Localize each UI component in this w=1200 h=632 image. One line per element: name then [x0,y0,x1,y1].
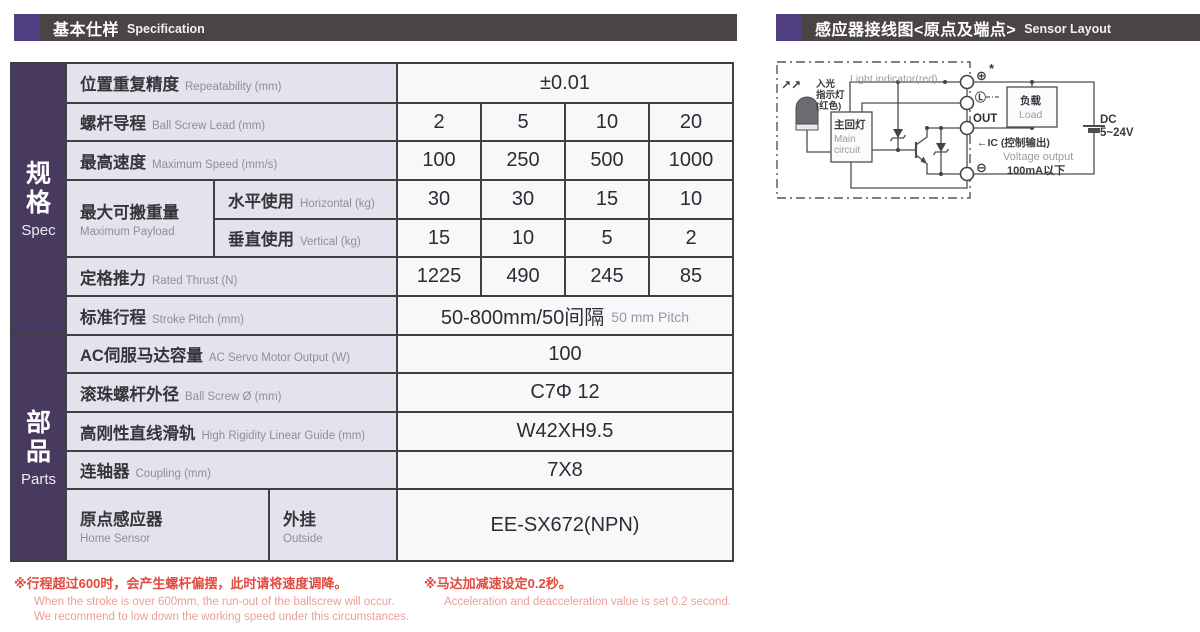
ic-control-output-label: ←IC (控制输出) [977,136,1050,149]
zener1-icon [893,129,903,138]
spec-header-title-en: Specification [127,20,205,36]
row-payload-horizontal-label: 水平使用Horizontal (kg) [215,181,396,218]
label-en: Home Sensor [80,533,268,545]
main-circuit-cn: 主回灯 [834,118,866,131]
label-cn: 外挂 [283,506,396,530]
label-en: Ball Screw Lead (mm) [152,120,265,132]
footnote-en-line2: We recommend to low down the working spe… [34,610,409,625]
cell-lead-1: 5 [482,104,564,140]
cell-repeatability-value: ±0.01 [398,64,732,102]
sidebar-group-spec: 规格 Spec [12,64,65,334]
sensor-header-title-en: Sensor Layout [1024,20,1111,36]
cell-vertical-1: 10 [482,220,564,256]
row-home-sensor-outside-label: 外挂 Outside [270,490,396,560]
cell-vertical-2: 5 [566,220,648,256]
junction-dot [939,172,943,176]
label-cn: AC伺服马达容量 [80,347,203,365]
footnote-en-line1: When the stroke is over 600mm, the run-o… [34,595,409,610]
terminal-plus [961,76,974,89]
label-en: AC Servo Motor Output (W) [209,352,350,364]
asterisk: * [989,61,995,76]
footnote-acceleration: ※马达加减速设定0.2秒。 Acceleration and deacceler… [424,573,731,610]
label-en: Coupling (mm) [136,468,211,480]
terminal-minus [961,168,974,181]
row-screw-label: 滚珠螺杆外径Ball Screw Ø (mm) [67,374,396,411]
sensor-section-header: 感应器接线图<原点及端点> Sensor Layout [776,14,1200,41]
accent-square [776,14,802,41]
led-dome-icon [796,97,818,124]
footnote-cn: ※行程超过600时，会产生螺杆偏摆，此时请将速度调降。 [14,573,409,592]
light-indicator-label: Light indicator(red) [850,73,938,85]
terminal-out [961,122,974,135]
plus-symbol: ⊕ [976,68,987,83]
dc-voltage-label: 5~24V [1100,127,1134,139]
light-label-cn2: 指示灯 [816,89,845,101]
sensor-header-title-cn: 感应器接线图<原点及端点> [815,16,1016,40]
label-en: Repeatability (mm) [185,81,282,93]
out-label: OUT [973,113,997,125]
accent-square [14,14,40,41]
load-box [1007,87,1057,127]
cell-lead-2: 10 [566,104,648,140]
row-repeatability-label: 位置重复精度Repeatability (mm) [67,64,396,102]
cell-coupling-value: 7X8 [398,452,732,488]
row-guide-label: 高刚性直线滑轨High Rigidity Linear Guide (mm) [67,413,396,450]
cell-screw-value: C7Φ 12 [398,374,732,411]
sidebar-spec-cn: 规格 [25,160,52,219]
label-en: Maximum Speed (mm/s) [152,159,277,171]
label-cn: 滚珠螺杆外径 [80,386,179,404]
spec-header-bar: 基本仕样 Specification [40,14,737,41]
sensor-wiring-diagram: ↗↗ 入光 指示灯 (红色) Light indicator(red) 主回灯 … [776,56,1200,206]
cell-horizontal-3: 10 [650,181,732,218]
label-cn: 螺杆导程 [80,115,146,133]
wire-l [862,103,961,112]
row-thrust-label: 定格推力Rated Thrust (N) [67,258,396,295]
junction-dot [896,148,900,152]
junction-dot [925,126,929,130]
sensor-header-bar: 感应器接线图<原点及端点> Sensor Layout [802,14,1200,41]
specification-table: 规格 Spec 部品 Parts 位置重复精度Repeatability (mm… [10,62,734,562]
sidebar-parts-cn: 部品 [25,409,52,468]
row-speed-label: 最高速度Maximum Speed (mm/s) [67,142,396,179]
cell-thrust-2: 245 [566,258,648,295]
row-home-sensor-label: 原点感应器 Home Sensor [67,490,268,560]
cell-stroke-value: 50-800mm/50间隔 50 mm Pitch [398,297,732,334]
cell-speed-0: 100 [398,142,480,179]
cell-lead-3: 20 [650,104,732,140]
footnote-stroke-warning: ※行程超过600时，会产生螺杆偏摆，此时请将速度调降。 When the str… [14,573,409,625]
label-en: Vertical (kg) [300,236,361,248]
cell-speed-3: 1000 [650,142,732,179]
footnote-cn: ※马达加减速设定0.2秒。 [424,573,731,592]
label-cn: 定格推力 [80,270,146,288]
spec-header-title-cn: 基本仕样 [53,16,119,40]
light-arrows-icon: ↗↗ [781,78,801,92]
label-cn: 水平使用 [228,193,294,211]
label-en: High Rigidity Linear Guide (mm) [202,430,366,442]
light-label-cn1: 入光 [815,78,836,90]
dc-label: DC [1100,114,1117,126]
load-label-en: Load [1019,109,1043,121]
wire-plus [850,82,961,112]
cell-motor-value: 100 [398,336,732,372]
cell-vertical-0: 15 [398,220,480,256]
main-circuit-en1: Main [834,134,856,145]
label-cn: 位置重复精度 [80,76,179,94]
label-cn: 最高速度 [80,154,146,172]
wiring-diagram-canvas: ↗↗ 入光 指示灯 (红色) Light indicator(red) 主回灯 … [776,56,1200,206]
row-lead-label: 螺杆导程Ball Screw Lead (mm) [67,104,396,140]
cell-vertical-3: 2 [650,220,732,256]
spec-section-header: 基本仕样 Specification [14,14,737,41]
cell-guide-value: W42XH9.5 [398,413,732,450]
minus-symbol: ⊖ [976,160,987,175]
label-en: Outside [283,533,396,545]
junction-dot [943,80,947,84]
label-cn: 原点感应器 [80,506,268,530]
label-en: Stroke Pitch (mm) [152,314,244,326]
label-en: Horizontal (kg) [300,198,375,210]
terminal-l [961,97,974,110]
wire-collector [916,128,961,145]
cell-thrust-0: 1225 [398,258,480,295]
junction-dot [939,126,943,130]
label-cn: 垂直使用 [228,231,294,249]
wire-emitter [916,155,961,174]
main-circuit-en2: circuit [834,145,860,156]
cell-speed-1: 250 [482,142,564,179]
zener2-icon [936,143,946,152]
cell-lead-0: 2 [398,104,480,140]
current-limit-label: 100mA以下 [1007,164,1065,177]
light-label-cn3: (红色) [816,100,841,112]
cell-horizontal-1: 30 [482,181,564,218]
cell-horizontal-2: 15 [566,181,648,218]
cell-speed-2: 500 [566,142,648,179]
label-en: Maximum Payload [80,226,213,238]
label-cn: 最大可搬重量 [80,199,213,223]
label-cn: 标准行程 [80,309,146,327]
wire-led [807,130,831,152]
led-base [796,124,818,130]
cell-horizontal-0: 30 [398,181,480,218]
junction-dot [1030,80,1034,84]
row-stroke-label: 标准行程Stroke Pitch (mm) [67,297,396,334]
load-label-cn: 负载 [1020,94,1042,107]
row-coupling-label: 连轴器Coupling (mm) [67,452,396,488]
voltage-output-label: Voltage output [1003,151,1073,163]
label-en: Ball Screw Ø (mm) [185,391,281,403]
label-cn: 连轴器 [80,463,130,481]
label-en: Rated Thrust (N) [152,275,237,287]
sidebar-group-parts: 部品 Parts [12,336,65,560]
sidebar-spec-en: Spec [21,222,55,239]
footnote-en-line1: Acceleration and deacceleration value is… [444,595,731,610]
cell-home-sensor-value: EE-SX672(NPN) [398,490,732,560]
emitter-arrow [921,157,928,165]
row-payload-vertical-label: 垂直使用Vertical (kg) [215,220,396,256]
label-cn: 高刚性直线滑轨 [80,425,196,443]
cell-thrust-1: 490 [482,258,564,295]
cell-thrust-3: 85 [650,258,732,295]
row-motor-label: AC伺服马达容量AC Servo Motor Output (W) [67,336,396,372]
stroke-value-cn: 50-800mm/50间隔 [441,301,604,330]
stroke-value-en: 50 mm Pitch [611,306,689,325]
l-symbol: Ⓛ [975,90,986,104]
sidebar-parts-en: Parts [21,471,56,488]
row-payload-label: 最大可搬重量 Maximum Payload [67,181,213,256]
